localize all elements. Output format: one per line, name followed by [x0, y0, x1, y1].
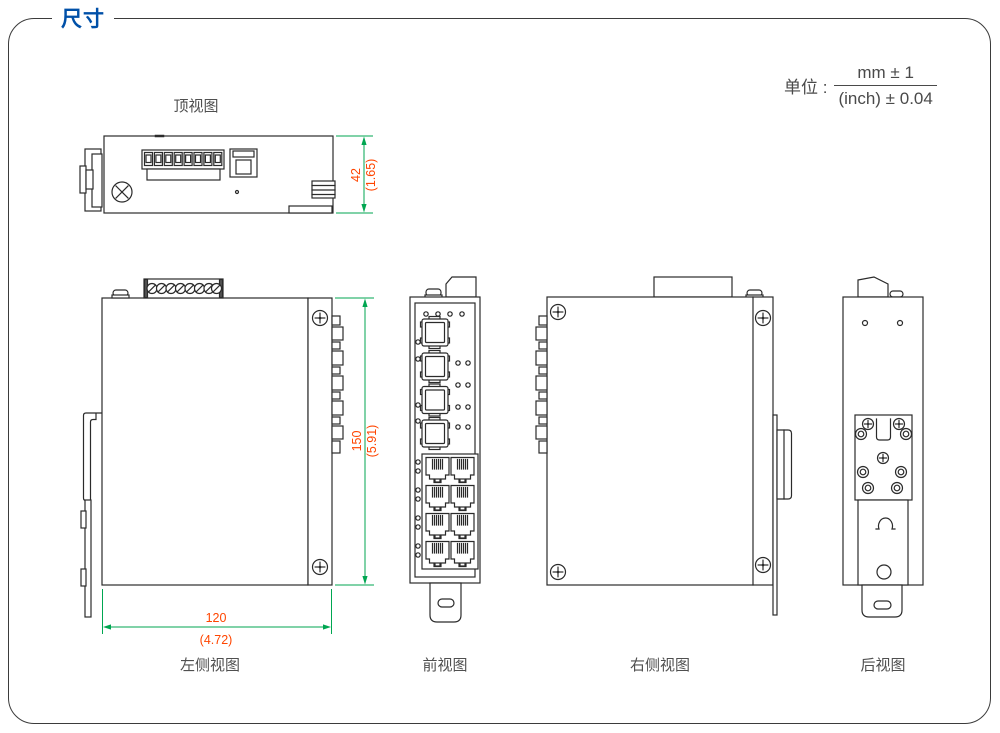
sfp-port-icon [421, 351, 450, 383]
left-view-drawing [81, 279, 343, 617]
top-view-drawing [80, 136, 335, 213]
panel-screw-icon [313, 311, 328, 326]
sfp-port-icon [421, 384, 450, 416]
terminal-block-top [142, 150, 224, 180]
bottom-mount-tab [862, 585, 902, 617]
port-profile-cutouts [536, 316, 547, 453]
dim-height-inch: (1.65) [364, 159, 378, 192]
din-rail-hook-left [81, 413, 102, 617]
left-front-panel-edge [308, 298, 332, 585]
din-latch-icon [312, 181, 335, 198]
terminal-block-side [144, 279, 223, 298]
sfp-port-icon [421, 317, 450, 349]
back-view-drawing [843, 277, 923, 617]
dimension-drawing: 42 (1.65) [0, 0, 1000, 733]
reset-pinhole [236, 191, 239, 194]
panel-screw-icon [313, 560, 328, 575]
button-bump [890, 291, 903, 297]
phillips-screw-icon [878, 453, 889, 464]
dimension-depth-150: 150 (5.91) [335, 298, 379, 585]
bottom-mount-tab [430, 583, 461, 622]
panel-screw-icon [756, 311, 771, 326]
dim-height-mm: 42 [349, 168, 363, 182]
din-clip-section [858, 500, 908, 585]
button-bump [112, 290, 129, 298]
din-rail-hook-right [773, 415, 792, 615]
dimension-height-42: 42 (1.65) [336, 136, 378, 213]
grounding-screw-icon [112, 182, 132, 202]
dim-width-mm: 120 [206, 611, 227, 625]
panel-screw-icon [551, 305, 566, 320]
panel-screw-icon [551, 565, 566, 580]
rj45-port-top [230, 149, 257, 177]
dim-depth-mm: 150 [350, 431, 364, 452]
front-view-drawing [410, 277, 480, 622]
phillips-screw-icon [863, 419, 874, 430]
din-mount-bracket-top [80, 149, 102, 211]
right-view-drawing [536, 277, 792, 615]
right-body [547, 297, 773, 585]
terminal-block-side [654, 277, 732, 297]
dim-depth-inch: (5.91) [365, 425, 379, 458]
panel-screw-icon [756, 558, 771, 573]
dim-width-inch: (4.72) [200, 633, 233, 647]
terminal-block-front [446, 277, 476, 297]
port-profile-cutouts [332, 316, 343, 453]
phillips-screw-icon [894, 419, 905, 430]
sfp-port-icon [421, 418, 450, 450]
terminal-block-back [858, 277, 888, 297]
dimension-width-120: 120 (4.72) [103, 589, 332, 647]
din-mount-plate [855, 415, 912, 500]
left-body [102, 298, 308, 585]
top-bottom-notch [289, 206, 332, 213]
